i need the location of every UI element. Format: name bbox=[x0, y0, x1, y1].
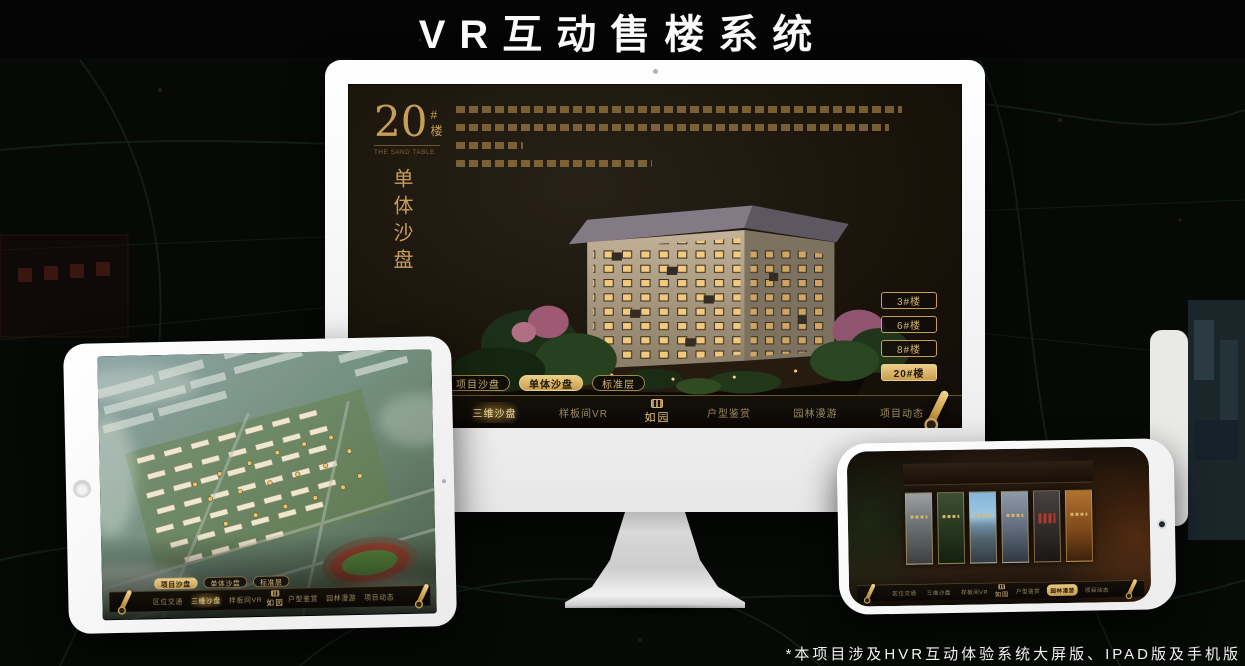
gallery-panel[interactable] bbox=[1033, 490, 1061, 562]
doorway-lintel bbox=[903, 460, 1093, 485]
brand-logo: 如园 bbox=[995, 584, 1010, 599]
nav-item-showroom-vr[interactable]: 样板间VR bbox=[958, 586, 992, 598]
seal-icon bbox=[999, 584, 1006, 589]
subtab-single-building[interactable]: 单体沙盘 bbox=[204, 576, 248, 588]
background-photo-block bbox=[1188, 300, 1245, 540]
poster-canvas: VR互动售楼系统 20 #楼 THE SAND TABLE 单体沙盘 bbox=[0, 0, 1245, 666]
description-line bbox=[456, 142, 523, 149]
floor-button-6[interactable]: 6#楼 bbox=[881, 316, 937, 333]
phone-screen: 区位交通 三维沙盘 样板间VR 如园 户型鉴赏 园林漫游 项目动态 bbox=[847, 447, 1152, 607]
brand-logo-text: 如园 bbox=[266, 597, 284, 608]
gallery-panel[interactable] bbox=[969, 491, 997, 563]
nav-item-unit-gallery[interactable]: 户型鉴赏 bbox=[284, 591, 322, 606]
brand-logo: 如园 bbox=[644, 399, 670, 425]
footnote-text: *本项目涉及HVR互动体验系统大屏版、IPAD版及手机版 bbox=[786, 643, 1241, 664]
scene-gallery bbox=[905, 490, 1093, 565]
scroll-icon[interactable] bbox=[413, 583, 431, 609]
nav-item-project-news[interactable]: 项目动态 bbox=[1081, 583, 1112, 595]
subtab-single-building[interactable]: 单体沙盘 bbox=[519, 375, 583, 391]
nav-item-location-traffic[interactable]: 区位交通 bbox=[889, 587, 920, 599]
subtab-project-sandbox[interactable]: 项目沙盘 bbox=[154, 577, 198, 589]
subtab-standard-floor[interactable]: 标准层 bbox=[253, 576, 289, 588]
nav-item-unit-gallery[interactable]: 户型鉴赏 bbox=[701, 402, 757, 423]
gallery-panel[interactable] bbox=[1001, 491, 1029, 563]
page-title: VR互动售楼系统 bbox=[0, 2, 1245, 60]
subtab-standard-floor[interactable]: 标准层 bbox=[592, 375, 645, 391]
sandbox-subtabs: 项目沙盘 单体沙盘 标准层 bbox=[446, 375, 645, 391]
seal-icon bbox=[271, 590, 279, 596]
nav-item-garden-roam[interactable]: 园林漫游 bbox=[1047, 584, 1078, 596]
nav-item-location-traffic[interactable]: 区位交通 bbox=[149, 594, 187, 609]
building-number-suffix: #楼 bbox=[430, 108, 442, 139]
nav-item-3d-sandbox[interactable]: 三维沙盘 bbox=[467, 402, 523, 423]
floor-button-3[interactable]: 3#楼 bbox=[881, 292, 937, 309]
monitor-stand bbox=[505, 512, 805, 608]
brand-logo: 如园 bbox=[266, 590, 284, 608]
nav-item-3d-sandbox[interactable]: 三维沙盘 bbox=[187, 593, 225, 608]
nav-item-garden-roam[interactable]: 园林漫游 bbox=[787, 402, 843, 423]
gallery-panel[interactable] bbox=[937, 492, 965, 564]
building-model-image bbox=[438, 150, 908, 406]
gallery-panel[interactable] bbox=[1065, 490, 1093, 562]
floor-button-20[interactable]: 20#楼 bbox=[881, 364, 937, 381]
subtab-project-sandbox[interactable]: 项目沙盘 bbox=[446, 375, 510, 391]
scroll-icon[interactable] bbox=[116, 589, 134, 615]
hero-english-caption: THE SAND TABLE bbox=[374, 149, 434, 156]
tablet-screen: 项目沙盘 单体沙盘 标准层 区位交通 三维沙盘 样板间VR 如园 bbox=[97, 349, 436, 620]
tablet-device: 项目沙盘 单体沙盘 标准层 区位交通 三维沙盘 样板间VR 如园 bbox=[63, 336, 457, 634]
monitor-shadow bbox=[465, 602, 845, 620]
phone-nav-wrap: 区位交通 三维沙盘 样板间VR 如园 户型鉴赏 园林漫游 项目动态 bbox=[857, 580, 1144, 602]
nav-item-unit-gallery[interactable]: 户型鉴赏 bbox=[1013, 585, 1044, 597]
nav-item-3d-sandbox[interactable]: 三维沙盘 bbox=[923, 586, 954, 598]
floor-button-group: 3#楼 6#楼 8#楼 20#楼 bbox=[881, 292, 937, 381]
monitor-camera-icon bbox=[653, 69, 658, 74]
camera-icon bbox=[1159, 521, 1165, 527]
scroll-icon[interactable] bbox=[922, 389, 952, 428]
building-number-value: 20 bbox=[374, 102, 427, 142]
seal-icon bbox=[651, 399, 663, 408]
nav-item-garden-roam[interactable]: 园林漫游 bbox=[322, 590, 360, 605]
brand-logo-text: 如园 bbox=[995, 589, 1009, 598]
scroll-icon[interactable] bbox=[1124, 578, 1139, 599]
phone-device: 区位交通 三维沙盘 样板间VR 如园 户型鉴赏 园林漫游 项目动态 bbox=[837, 438, 1177, 615]
gallery-panel[interactable] bbox=[905, 492, 933, 564]
nav-item-showroom-vr[interactable]: 样板间VR bbox=[553, 402, 614, 423]
description-line bbox=[456, 124, 889, 131]
scroll-icon[interactable] bbox=[862, 583, 877, 604]
background-plaque bbox=[0, 235, 128, 337]
camera-icon bbox=[442, 479, 446, 483]
description-line bbox=[456, 106, 902, 113]
nav-item-project-news[interactable]: 项目动态 bbox=[360, 589, 398, 604]
hero-vertical-title: 单体沙盘 bbox=[388, 168, 417, 300]
nav-item-showroom-vr[interactable]: 样板间VR bbox=[225, 592, 267, 607]
floor-button-8[interactable]: 8#楼 bbox=[881, 340, 937, 357]
brand-logo-text: 如园 bbox=[644, 409, 670, 425]
building-number: 20 #楼 bbox=[374, 102, 440, 146]
